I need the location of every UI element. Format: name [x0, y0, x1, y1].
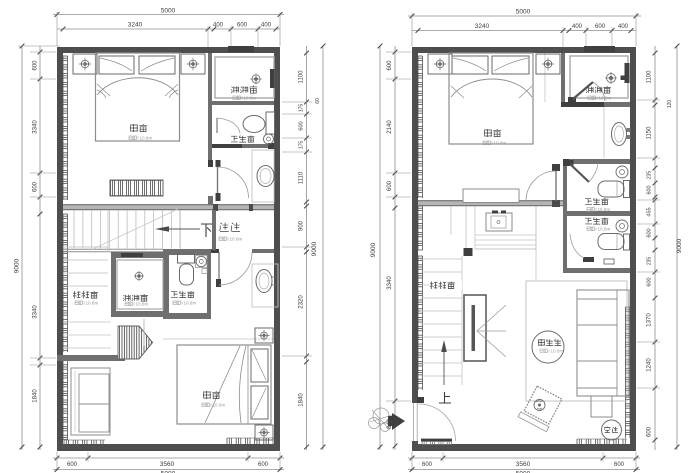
- svg-text:9000: 9000: [14, 258, 21, 273]
- svg-text:600: 600: [387, 60, 393, 71]
- svg-text:60: 60: [315, 98, 321, 104]
- svg-text:455: 455: [647, 207, 653, 216]
- svg-text:400: 400: [213, 23, 224, 29]
- svg-text:10.8m: 10.8m: [598, 227, 611, 232]
- svg-text:600: 600: [33, 181, 39, 192]
- svg-text:2320: 2320: [299, 295, 305, 309]
- svg-text:235: 235: [647, 257, 653, 266]
- svg-text:600: 600: [647, 426, 653, 437]
- svg-text:400: 400: [618, 24, 629, 30]
- svg-text:3240: 3240: [475, 23, 490, 30]
- svg-text:9000: 9000: [676, 238, 683, 253]
- svg-text:600: 600: [614, 462, 625, 468]
- svg-text:10.8m: 10.8m: [140, 136, 153, 141]
- svg-text:600: 600: [33, 60, 39, 71]
- svg-text:3560: 3560: [160, 461, 175, 468]
- svg-text:1100: 1100: [299, 70, 305, 84]
- svg-text:600: 600: [237, 23, 248, 29]
- svg-text:3340: 3340: [387, 276, 393, 290]
- svg-text:600: 600: [299, 121, 305, 130]
- svg-text:600: 600: [647, 186, 653, 195]
- svg-text:9000: 9000: [370, 242, 377, 257]
- svg-text:600: 600: [67, 462, 78, 468]
- svg-text:5000: 5000: [161, 8, 176, 15]
- svg-text:10.8m: 10.8m: [213, 403, 226, 408]
- svg-text:1840: 1840: [299, 393, 305, 407]
- svg-text:600: 600: [387, 180, 393, 191]
- svg-text:10.8m: 10.8m: [244, 96, 257, 101]
- svg-text:600: 600: [647, 228, 653, 237]
- svg-text:175: 175: [299, 141, 305, 150]
- svg-text:3340: 3340: [33, 120, 39, 134]
- svg-text:600: 600: [647, 277, 653, 286]
- svg-text:600: 600: [422, 462, 433, 468]
- svg-text:5000: 5000: [516, 9, 531, 16]
- svg-text:900: 900: [299, 220, 305, 231]
- svg-text:10.8m: 10.8m: [551, 349, 564, 354]
- svg-text:10.8m: 10.8m: [598, 207, 611, 212]
- svg-text:235: 235: [647, 171, 653, 180]
- svg-text:1150: 1150: [647, 126, 653, 140]
- svg-text:3560: 3560: [516, 461, 531, 468]
- svg-text:120: 120: [667, 100, 673, 109]
- svg-text:600: 600: [258, 462, 269, 468]
- svg-text:9000: 9000: [311, 241, 318, 256]
- svg-text:1100: 1100: [647, 70, 653, 84]
- svg-text:175: 175: [299, 104, 305, 113]
- svg-text:3240: 3240: [128, 22, 143, 29]
- svg-text:10.8m: 10.8m: [184, 301, 197, 306]
- svg-text:10.8m: 10.8m: [599, 96, 612, 101]
- svg-text:1240: 1240: [647, 358, 653, 372]
- svg-text:1840: 1840: [33, 389, 39, 403]
- svg-text:1110: 1110: [299, 171, 305, 184]
- svg-text:1370: 1370: [647, 313, 653, 327]
- svg-text:400: 400: [572, 24, 583, 30]
- svg-text:10.8m: 10.8m: [136, 302, 149, 307]
- svg-text:10.8m: 10.8m: [86, 301, 99, 306]
- svg-text:2140: 2140: [387, 120, 393, 134]
- svg-text:10.8m: 10.8m: [494, 141, 507, 146]
- svg-text:10.8m: 10.8m: [230, 237, 243, 242]
- svg-text:600: 600: [595, 24, 606, 30]
- svg-text:3340: 3340: [33, 305, 39, 319]
- svg-text:400: 400: [261, 23, 272, 29]
